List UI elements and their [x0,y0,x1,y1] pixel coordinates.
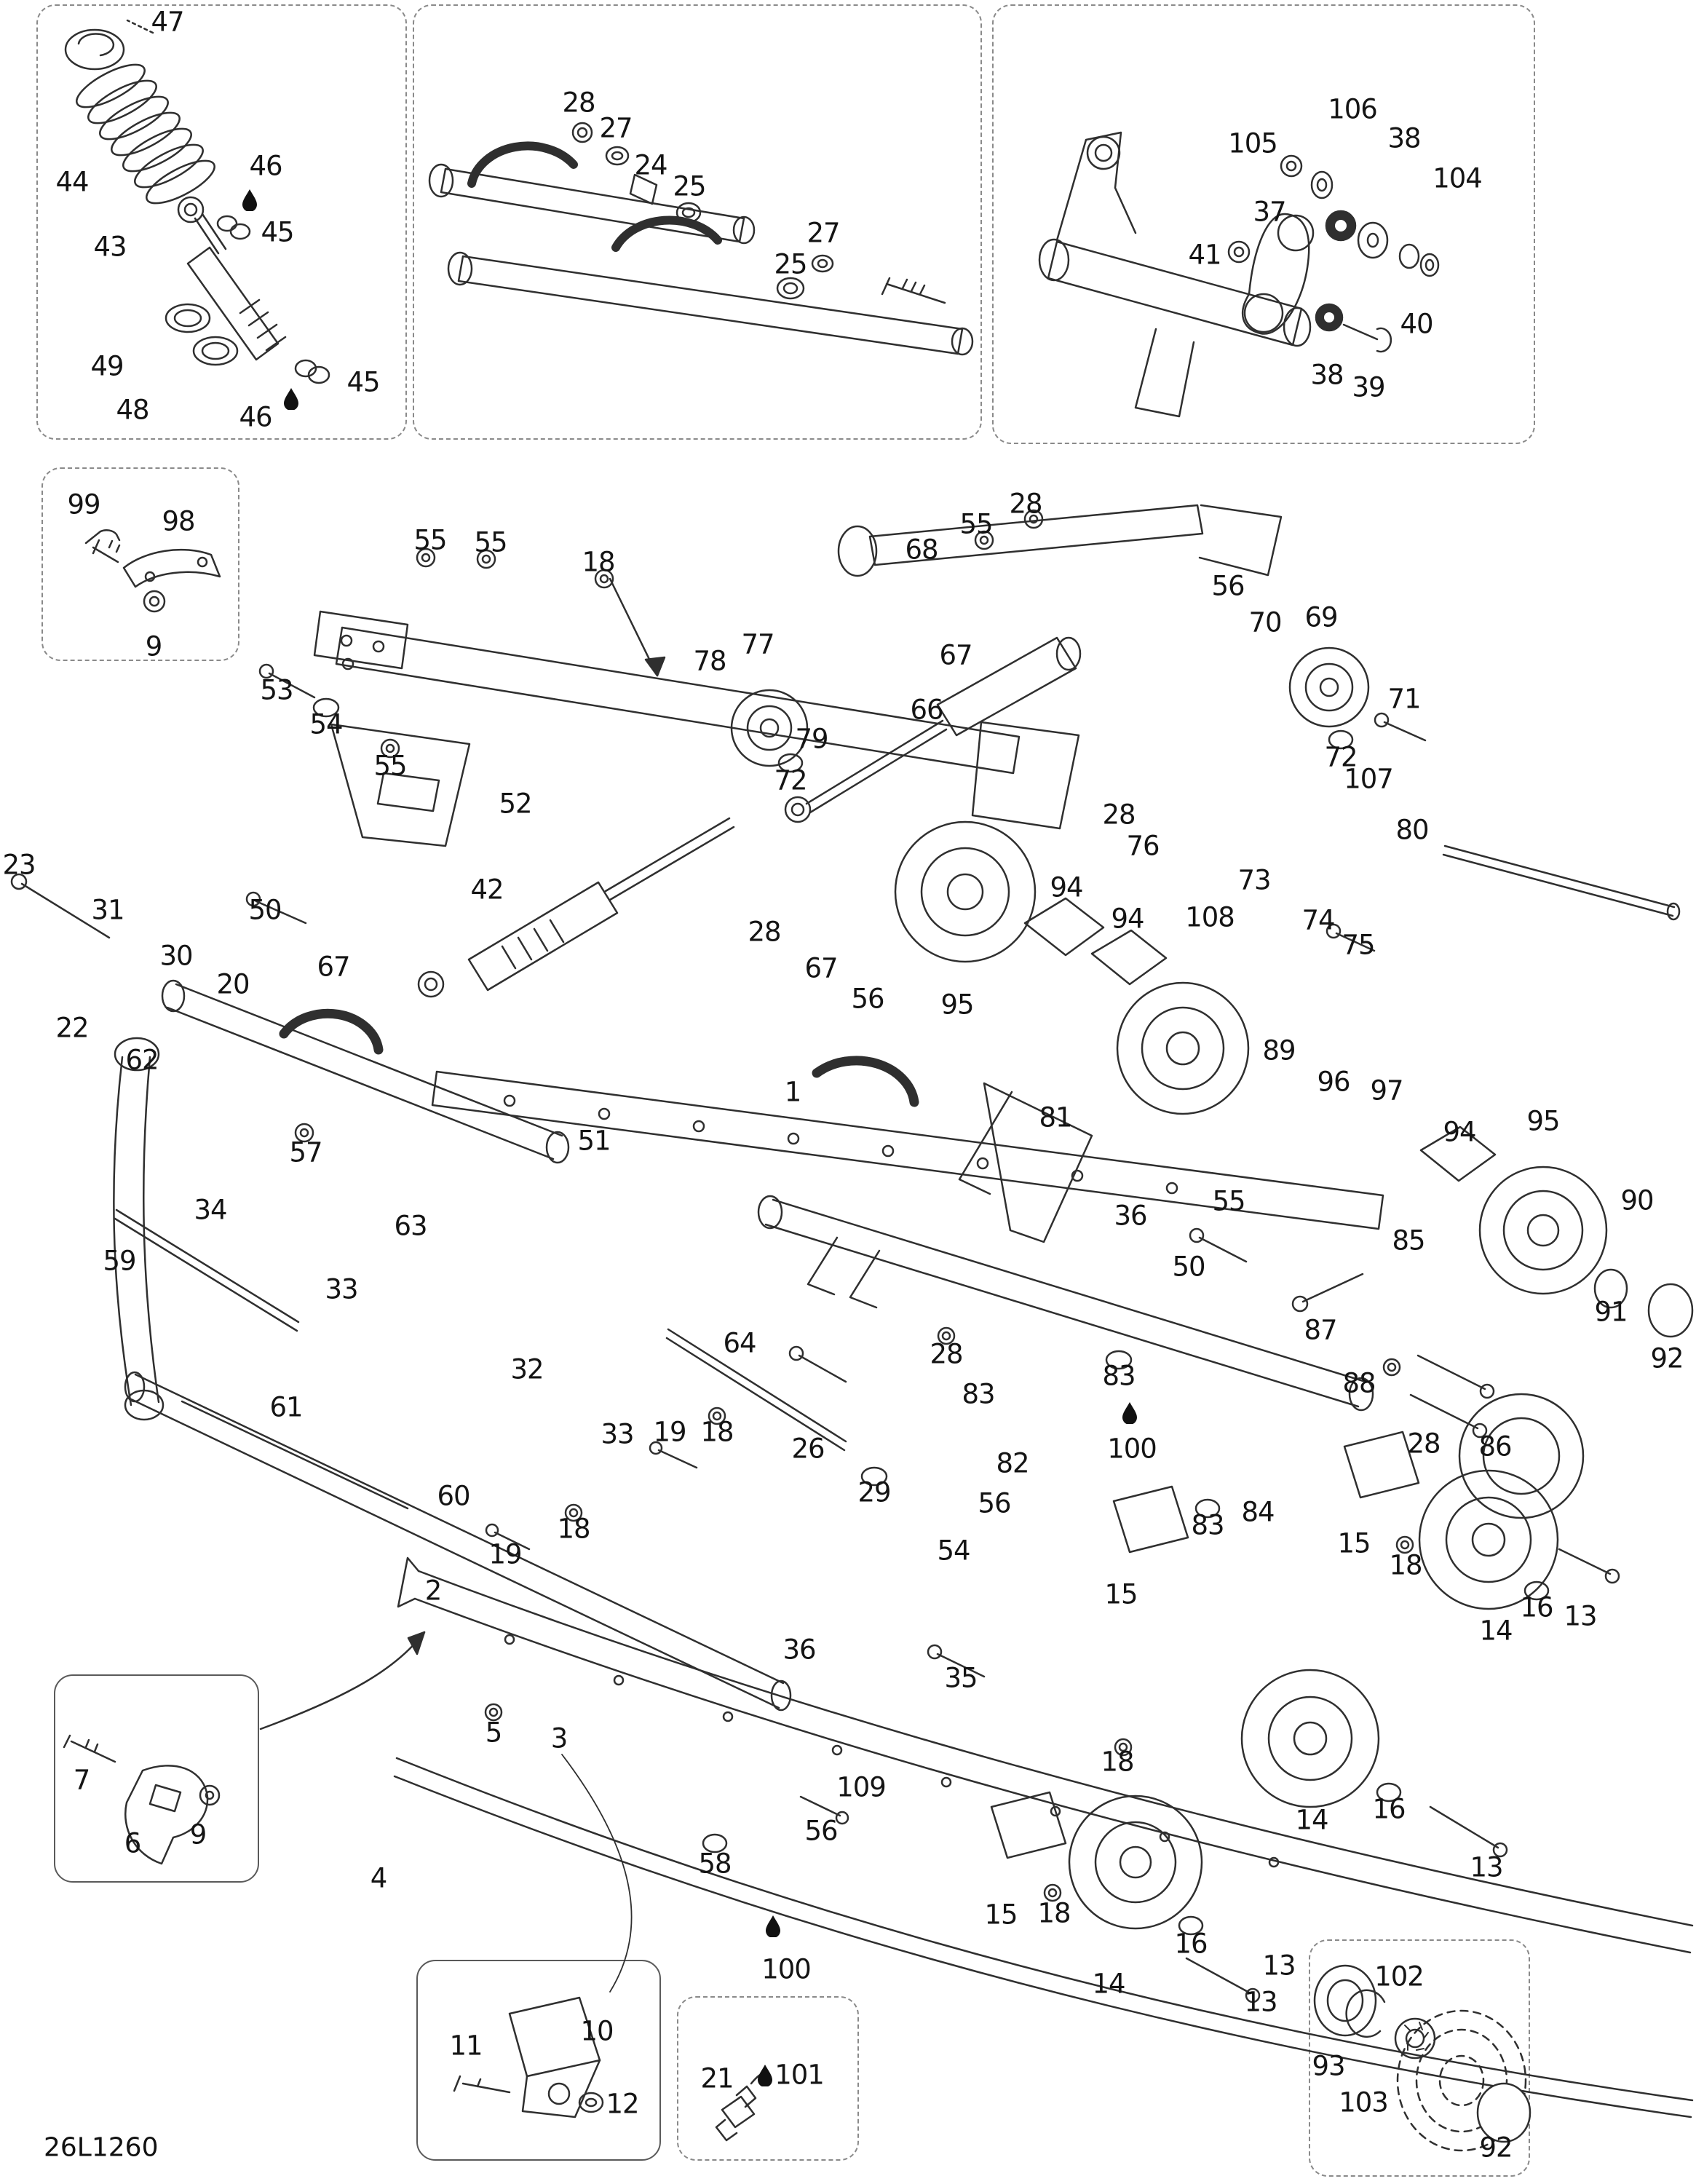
grease-droplet-icon [756,2063,774,2086]
drawing-code: 26L1260 [44,2133,158,2163]
parts-diagram-page: 4744464543494846452827242525271051063810… [0,0,1696,2184]
droplet-layer [0,0,1696,2184]
grease-droplet-icon [764,1914,782,1937]
grease-droplet-icon [282,387,300,410]
grease-droplet-icon [1121,1401,1138,1424]
grease-droplet-icon [241,188,258,211]
